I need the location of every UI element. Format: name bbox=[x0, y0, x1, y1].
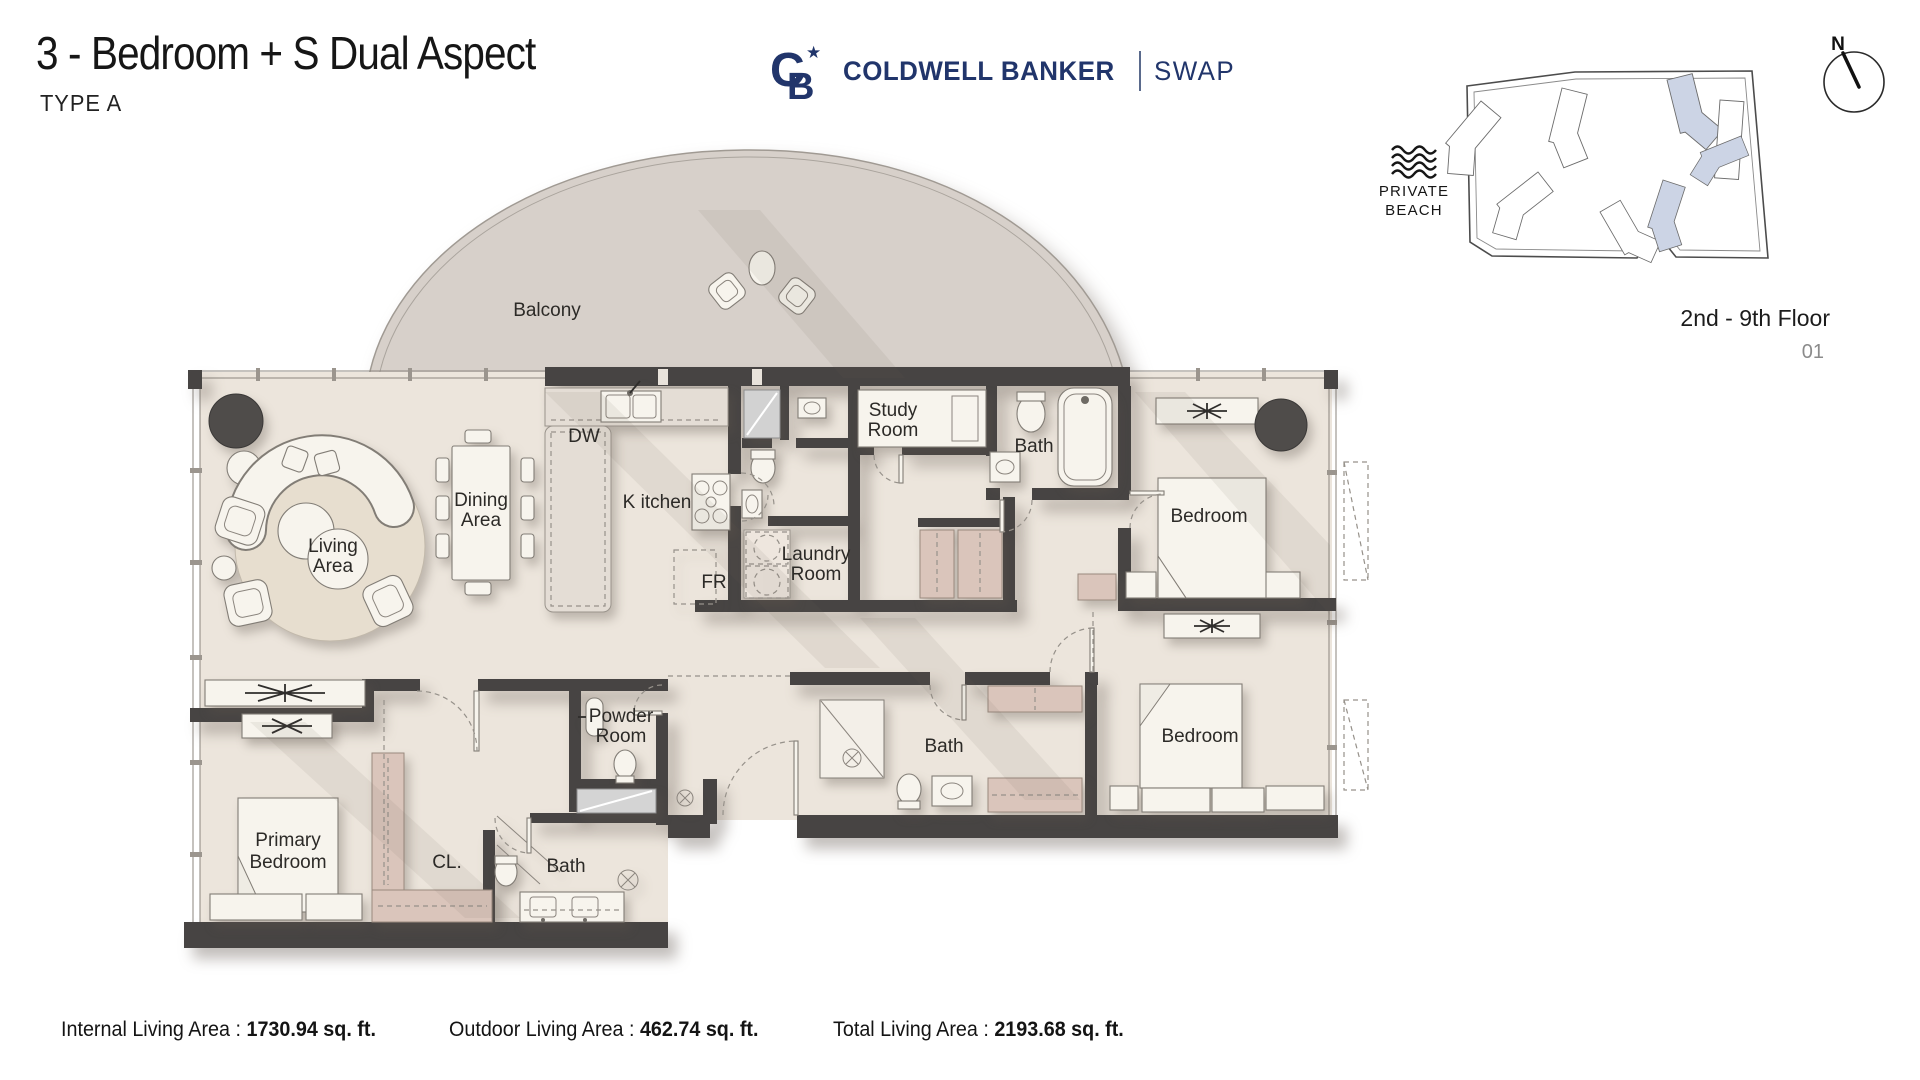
compass-north-label: N bbox=[1831, 34, 1845, 55]
room-label-primary-2: Bedroom bbox=[249, 852, 326, 873]
room-label-balcony: Balcony bbox=[513, 300, 581, 321]
star-icon: ★ bbox=[806, 43, 821, 62]
chair-dark bbox=[1255, 399, 1307, 451]
room-label-bedroom-bottom: Bedroom bbox=[1161, 726, 1238, 747]
stat-outdoor-label: Outdoor Living Area : bbox=[449, 1018, 634, 1041]
site-building bbox=[1543, 88, 1602, 173]
brand-suffix: SWAP bbox=[1154, 56, 1235, 87]
stat-outdoor-area: Outdoor Living Area : 462.74 sq. ft. bbox=[449, 1018, 758, 1042]
room-label-kitchen: K itchen bbox=[623, 492, 692, 513]
room-label-laundry-2: Room bbox=[791, 564, 842, 585]
page-title: 3 - Bedroom + S Dual Aspect bbox=[36, 26, 535, 80]
page-subtitle: TYPE A bbox=[40, 90, 122, 117]
stat-total-value: 2193.68 sq. ft. bbox=[994, 1018, 1123, 1041]
room-label-laundry-1: Laundry bbox=[782, 544, 851, 565]
room-label-powder-1: Powder bbox=[589, 706, 654, 727]
room-label-dining-2: Area bbox=[461, 510, 502, 531]
brand-logo: C B ★ COLDWELL BANKER SWAP bbox=[770, 42, 1239, 100]
room-label-study-1: Study bbox=[869, 400, 918, 421]
waves-icon bbox=[1392, 147, 1436, 178]
room-label-primary-1: Primary bbox=[255, 830, 321, 851]
stat-internal-value: 1730.94 sq. ft. bbox=[246, 1018, 375, 1041]
room-label-bath-top: Bath bbox=[1014, 436, 1053, 457]
floor-range-label: 2nd - 9th Floor bbox=[1680, 305, 1830, 331]
stat-total-label: Total Living Area : bbox=[833, 1018, 989, 1041]
room-label-dw: DW bbox=[568, 426, 600, 447]
site-building bbox=[1432, 101, 1514, 187]
room-label-bath-mid: Bath bbox=[924, 736, 963, 757]
site-building bbox=[1480, 172, 1562, 248]
coldwell-banker-monogram-icon: C B ★ bbox=[770, 42, 830, 100]
floor-plan-svg: Balcony DW K itchen FR Laundry Room Stud… bbox=[0, 0, 1920, 1080]
room-label-living-1: Living bbox=[308, 536, 358, 557]
compass: N bbox=[1824, 34, 1884, 112]
planter-dark bbox=[209, 394, 263, 448]
private-beach-label-2: BEACH bbox=[1385, 202, 1443, 219]
room-label-bedroom-top: Bedroom bbox=[1170, 506, 1247, 527]
stat-outdoor-value: 462.74 sq. ft. bbox=[640, 1018, 758, 1041]
site-plan: PRIVATE BEACH bbox=[1379, 70, 1768, 272]
brand-name: COLDWELL BANKER bbox=[843, 56, 1115, 87]
room-label-closet: CL. bbox=[432, 852, 462, 873]
room-label-study-2: Room bbox=[868, 420, 919, 441]
private-beach-label-1: PRIVATE bbox=[1379, 183, 1449, 200]
sink bbox=[932, 776, 972, 806]
area-stats: Internal Living Area : 1730.94 sq. ft. O… bbox=[0, 1018, 1920, 1048]
stat-internal-label: Internal Living Area : bbox=[61, 1018, 241, 1041]
brand-divider bbox=[1139, 51, 1141, 91]
page: 3 - Bedroom + S Dual Aspect TYPE A C B ★… bbox=[0, 0, 1920, 1080]
room-label-living-2: Area bbox=[313, 556, 354, 577]
room-label-powder-2: Room bbox=[596, 726, 647, 747]
monogram-b: B bbox=[787, 66, 814, 100]
toilet bbox=[897, 774, 921, 804]
stat-total-area: Total Living Area : 2193.68 sq. ft. bbox=[833, 1018, 1124, 1042]
floor-info: 2nd - 9th Floor 01 bbox=[1680, 305, 1830, 363]
room-label-dining-1: Dining bbox=[454, 490, 508, 511]
ac-units bbox=[1344, 462, 1368, 790]
toilet bbox=[614, 750, 636, 778]
room-label-fr: FR bbox=[701, 572, 726, 593]
room-label-bath-left: Bath bbox=[546, 856, 585, 877]
unit-number-label: 01 bbox=[1802, 341, 1824, 363]
stat-internal-area: Internal Living Area : 1730.94 sq. ft. bbox=[61, 1018, 376, 1042]
armchair bbox=[222, 578, 274, 628]
